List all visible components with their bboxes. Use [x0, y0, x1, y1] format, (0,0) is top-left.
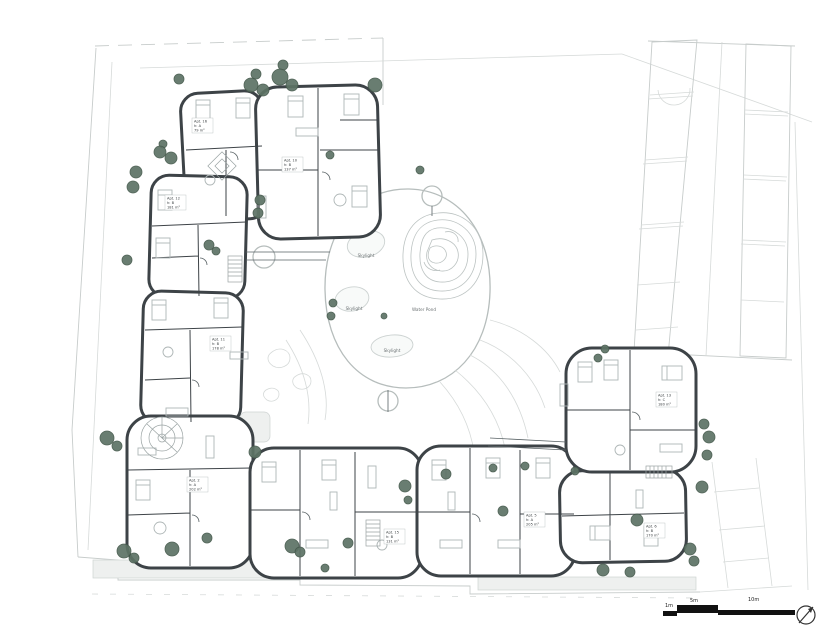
apartment-label: Apt. 5h: A205 m² [524, 512, 545, 527]
apartment-label: Apt. 11h: B178 m² [210, 336, 231, 351]
tree-icon [521, 462, 529, 470]
water-pond-label: Water Pond [412, 307, 436, 312]
round-skylight [422, 186, 442, 206]
tree-icon [165, 542, 179, 556]
round-skylight [253, 246, 275, 268]
parcel-line-top [140, 54, 622, 68]
tree-icon [498, 506, 508, 516]
water-pond [403, 213, 483, 299]
tree-icon [130, 166, 142, 178]
skylight [333, 227, 414, 359]
tree-icon [202, 533, 212, 543]
skylight-label: Skylight [358, 253, 375, 258]
tree-icon [122, 255, 132, 265]
tree-icon [112, 441, 122, 451]
skylight-label: Skylight [384, 348, 401, 353]
north-arrow-icon [797, 606, 815, 624]
tree-icon [295, 547, 305, 557]
apartment-label: Apt. 6h: B170 m² [644, 523, 665, 538]
scale-segment [718, 610, 795, 615]
tree-icon [381, 313, 387, 319]
neighbor-band-right-rungs [741, 110, 788, 302]
neighbor-band-left [634, 40, 697, 356]
parcel-strip-bottomright [712, 458, 772, 588]
apartment-label: Apt. 12h: B181 m² [165, 195, 186, 210]
building-wings [127, 84, 696, 578]
tree-icon [625, 567, 635, 577]
boundary-line-left-inner [88, 62, 112, 550]
neighbor-band-left-rungs [636, 92, 694, 330]
tree-icon [404, 496, 412, 504]
tree-icon [329, 299, 337, 307]
tree-icon [689, 556, 699, 566]
terrace-pad [478, 577, 696, 590]
tree-icon [416, 166, 424, 174]
scale-segment [677, 605, 718, 613]
tree-icon [165, 152, 177, 164]
tree-icon [127, 181, 139, 193]
tree-icon [174, 74, 184, 84]
tree-icon [255, 195, 265, 205]
scale-label-5m: 5m [690, 598, 698, 604]
tree-icon [696, 481, 708, 493]
scale-label-1m: 1m [665, 603, 673, 609]
tree-icon [703, 431, 715, 443]
tree-icon [699, 419, 709, 429]
scale-segment [663, 611, 677, 616]
tree-icon [327, 312, 335, 320]
neighbor-building [630, 40, 795, 360]
tree-icon [154, 146, 166, 158]
tree-icon [571, 467, 579, 475]
tree-icon [272, 69, 288, 85]
tree-icon [257, 84, 269, 96]
tree-icon [253, 208, 263, 218]
neighbor-band-right [740, 44, 791, 358]
tree-icon [286, 79, 298, 91]
boundary-line-left [72, 48, 96, 557]
tree-icon [489, 464, 497, 472]
tick-line-bottom [92, 594, 698, 598]
tree-icon [117, 544, 131, 558]
tree-icon [702, 450, 712, 460]
boundary-line-bottomright [700, 586, 792, 592]
boundary-dashed-line [95, 38, 383, 46]
tree-icon [441, 469, 451, 479]
tree-icon [278, 60, 288, 70]
tree-icon [594, 354, 602, 362]
tree-icon [601, 345, 609, 353]
tree-icon [129, 553, 139, 563]
rock-outlines [263, 349, 311, 401]
apartment-label: Apt. 16h: A79 m² [192, 118, 213, 133]
tree-icon [249, 446, 261, 458]
floor-plan-page: Skylight Skylight Skylight Water Pond Ap… [0, 0, 822, 637]
skylight-label: Skylight [346, 306, 363, 311]
apartment-label: Apt. 10h: B137 m² [282, 157, 303, 172]
tree-icon [399, 480, 411, 492]
tree-icon [684, 543, 696, 555]
tree-icon [244, 78, 258, 92]
tree-icon [343, 538, 353, 548]
neighbor-center-line [706, 42, 722, 356]
tree-icon [631, 514, 643, 526]
scale-bar: 1m 5m 10m [663, 597, 795, 616]
tree-icon [321, 564, 329, 572]
tree-icon [597, 564, 609, 576]
apartment-label: Apt. 13h: C180 m² [656, 392, 677, 407]
tree-icon [368, 78, 382, 92]
scale-label-10m: 10m [748, 597, 759, 603]
connector-paths [246, 206, 566, 450]
tree-icon [100, 431, 114, 445]
tree-icon [212, 247, 220, 255]
boundary-line-right [795, 122, 808, 590]
apartment-label: Apt. 15h: B131 m² [384, 529, 405, 544]
tree-icon [326, 151, 334, 159]
floor-plan-drawing: Skylight Skylight Skylight Water Pond Ap… [0, 0, 822, 637]
tree-icon [251, 69, 261, 79]
apartment-label: Apt. 2h: A202 m² [187, 477, 208, 492]
